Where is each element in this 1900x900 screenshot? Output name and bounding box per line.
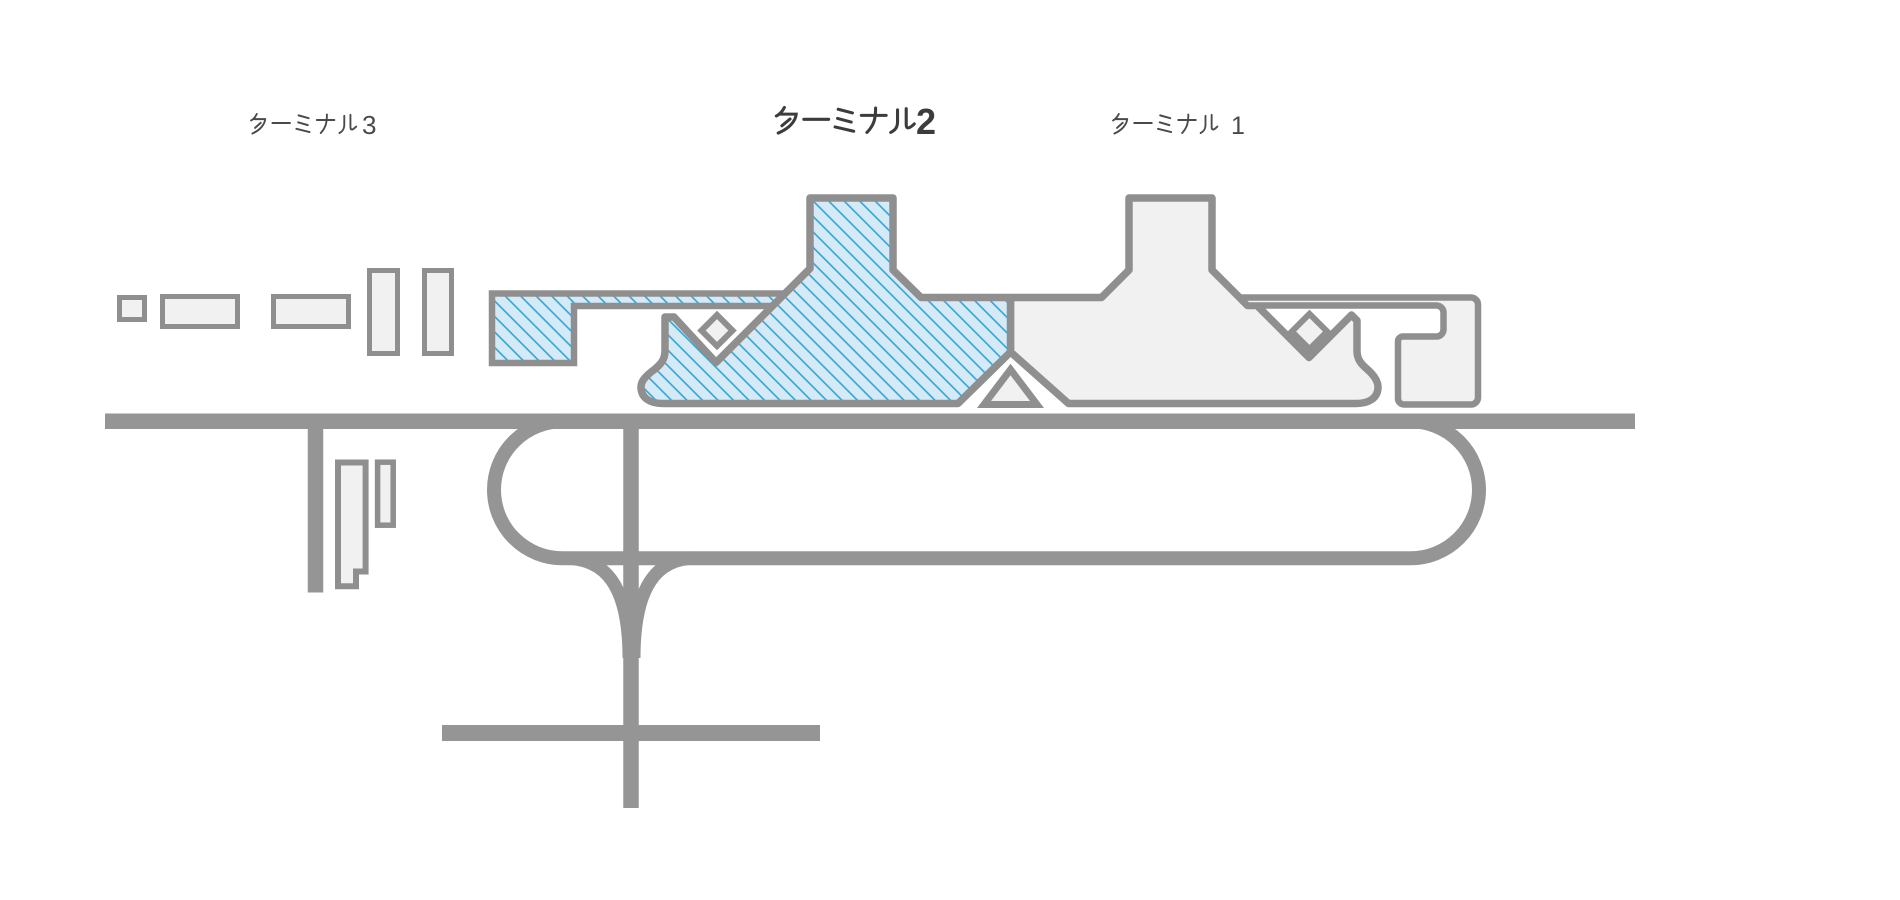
svg-text:1: 1 [1231,112,1245,140]
svg-text:2: 2 [916,101,936,142]
svg-text:3: 3 [362,110,376,140]
